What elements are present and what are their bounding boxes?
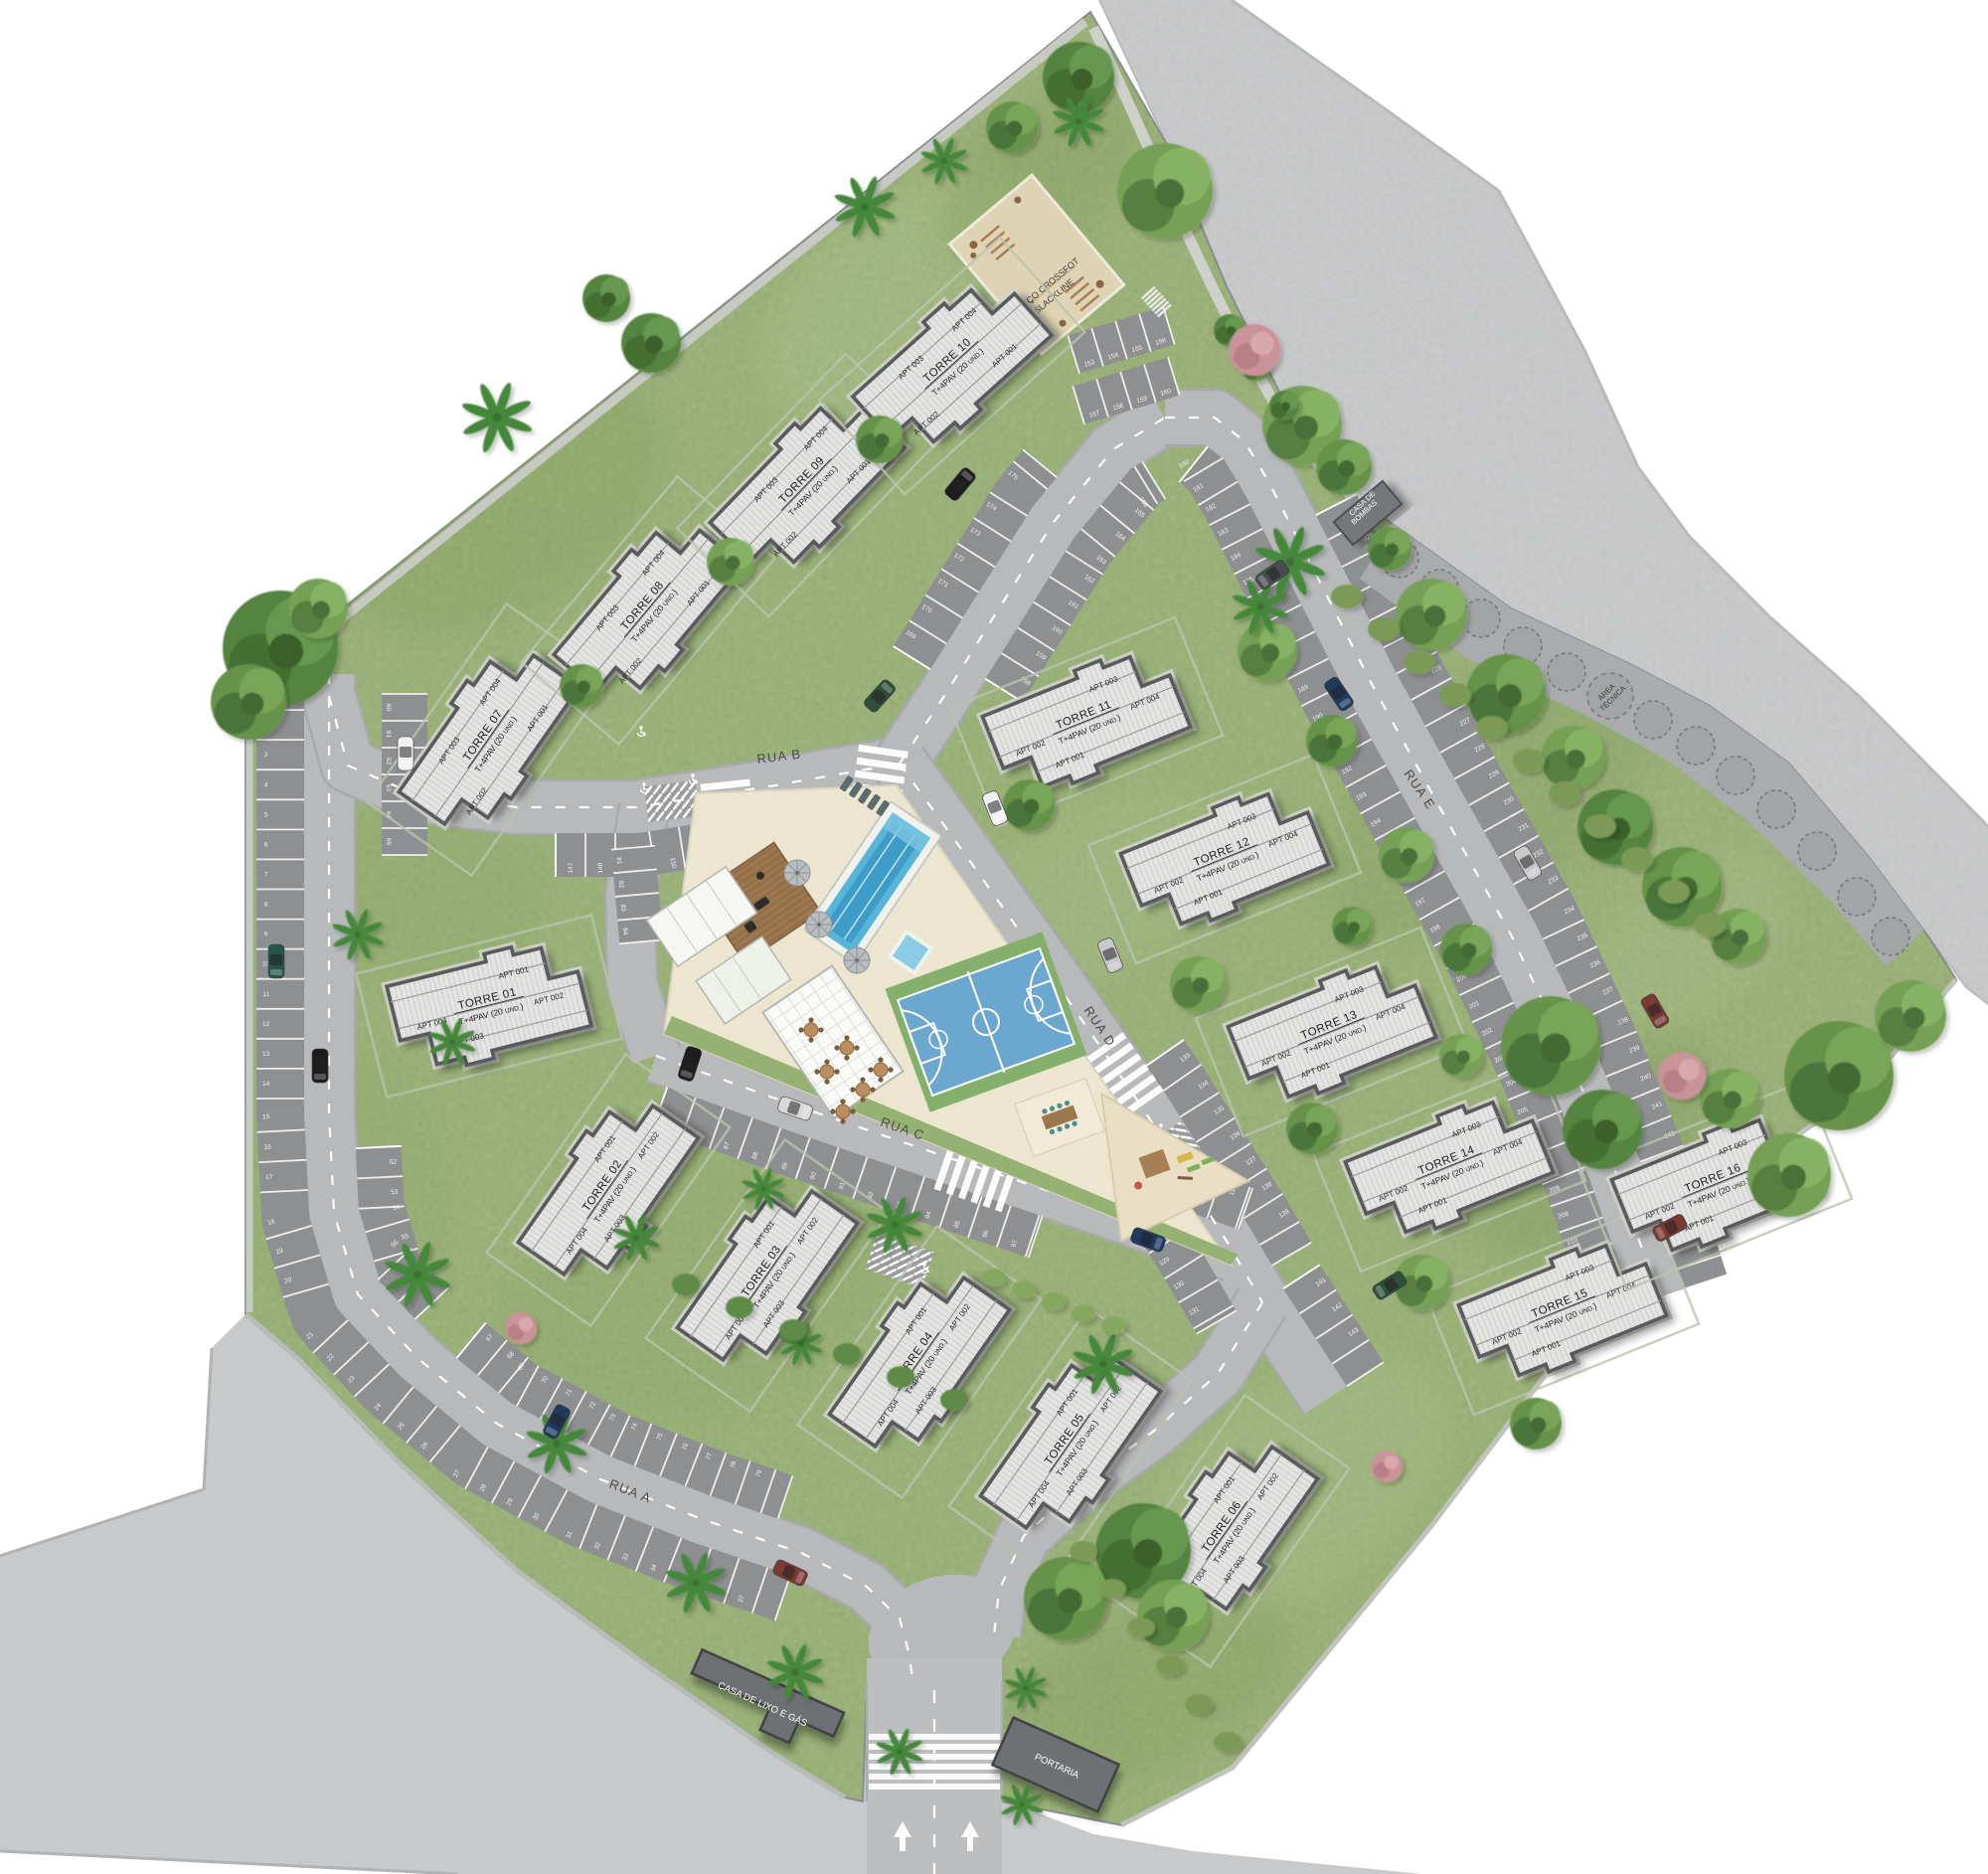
svg-text:17: 17	[265, 1174, 273, 1181]
svg-text:83: 83	[619, 904, 627, 912]
svg-text:9: 9	[264, 932, 268, 938]
svg-text:6: 6	[264, 841, 268, 848]
svg-text:11: 11	[262, 991, 269, 998]
svg-text:5: 5	[264, 811, 268, 818]
svg-text:13: 13	[262, 1051, 270, 1058]
svg-text:148: 148	[597, 862, 604, 873]
svg-text:8: 8	[264, 902, 268, 909]
svg-text:7: 7	[264, 872, 268, 879]
svg-text:84: 84	[621, 928, 629, 936]
svg-text:16: 16	[263, 1143, 271, 1150]
svg-text:3: 3	[264, 752, 268, 759]
svg-text:147: 147	[568, 862, 575, 873]
svg-text:81: 81	[615, 857, 623, 865]
svg-text:63: 63	[385, 784, 392, 792]
svg-text:61: 61	[385, 731, 392, 739]
svg-text:15: 15	[262, 1113, 270, 1120]
svg-text:12: 12	[262, 1021, 270, 1028]
svg-text:52: 52	[390, 1158, 398, 1165]
svg-text:4: 4	[264, 781, 268, 788]
svg-text:62: 62	[385, 758, 392, 766]
svg-text:53: 53	[391, 1189, 399, 1196]
svg-text:65: 65	[385, 838, 392, 846]
svg-text:82: 82	[617, 881, 625, 889]
svg-text:14: 14	[262, 1081, 270, 1088]
svg-text:60: 60	[385, 704, 392, 712]
